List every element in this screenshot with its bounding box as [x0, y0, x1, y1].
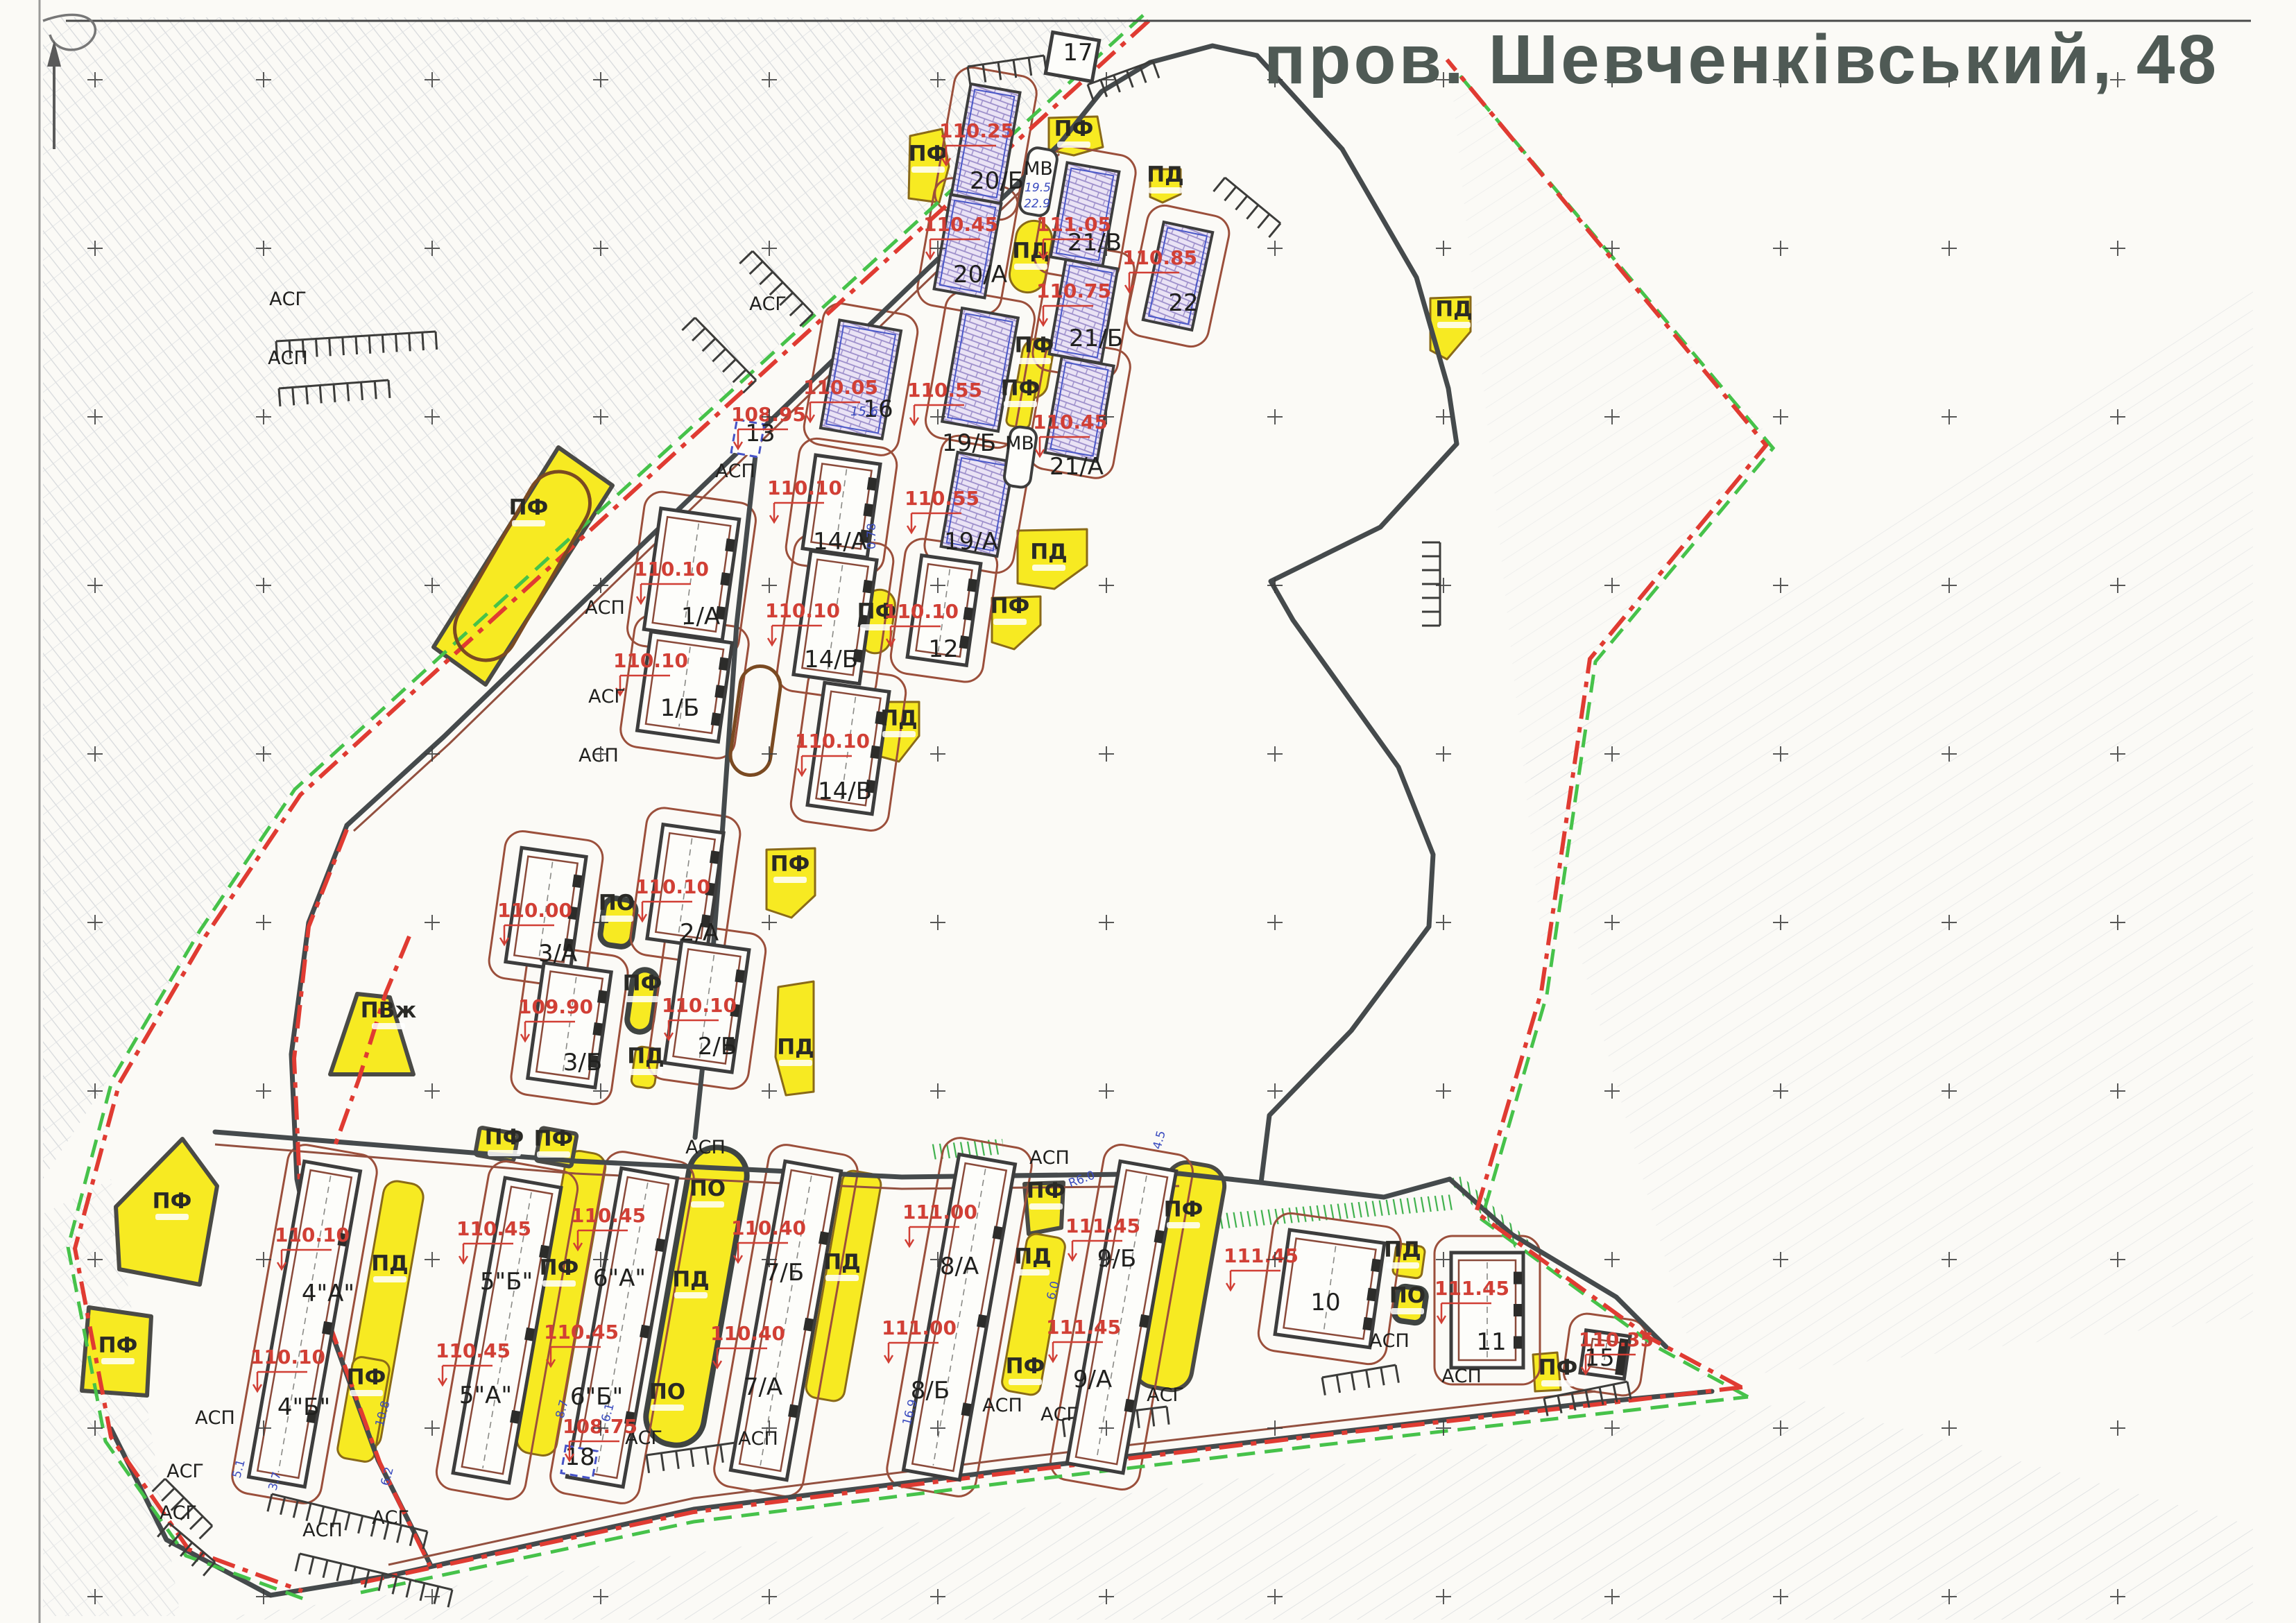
comb-tick — [279, 388, 280, 406]
building-label-12: 12 — [928, 635, 958, 663]
comb-tick — [396, 334, 397, 352]
comb-tick — [320, 386, 321, 404]
comb-tick — [409, 333, 411, 351]
elevation-value: 110.40 — [731, 1217, 806, 1239]
comb-tick — [369, 336, 370, 354]
area-size-text — [1016, 1269, 1050, 1276]
entrance-mark — [1367, 1288, 1376, 1301]
elevation-value: 111.45 — [1434, 1277, 1509, 1300]
building-label-5: 5"А" — [459, 1382, 512, 1409]
area-label-pd-2: ПД — [627, 1044, 665, 1069]
entrance-mark — [719, 657, 728, 670]
parking-label-АСГ: АСГ — [1040, 1404, 1078, 1425]
area-label-pf-s9: ПФ — [1164, 1197, 1203, 1222]
area-size-text — [372, 1023, 405, 1029]
parking-label-АСГ: АСГ — [588, 686, 626, 707]
area-label-pf-2oval: ПФ — [623, 971, 662, 996]
area-size-text — [1004, 401, 1037, 407]
entrance-mark — [1371, 1259, 1380, 1272]
area-size-text — [860, 624, 893, 630]
parking-label-АСГ: АСГ — [160, 1502, 197, 1524]
area-size-text — [1018, 358, 1051, 364]
elevation-value: 110.75 — [1036, 280, 1111, 302]
structure-label-mv2: МВ — [1005, 433, 1034, 454]
area-size-text — [1391, 1308, 1424, 1314]
area-size-text — [373, 1276, 406, 1282]
area-label-po-mid: ПО — [599, 891, 635, 916]
area-size-text — [773, 877, 807, 883]
elevation-value: 110.45 — [544, 1321, 619, 1343]
entrance-mark — [862, 580, 872, 593]
entrance-mark — [1615, 1362, 1625, 1375]
area-label-pd-12: ПД — [880, 706, 918, 731]
elevation-value: 110.10 — [662, 994, 737, 1017]
comb-tick — [361, 382, 363, 400]
area-label-po-strip: ПД — [672, 1267, 710, 1292]
building-label-17: 17 — [1063, 39, 1093, 67]
elevation-value: 111.00 — [902, 1201, 977, 1223]
scanned-site-plan-page: ПФПФПФПФПФПДПФПДПДПФПДПФПДПФПОПФПДПФПДПВ… — [0, 0, 2296, 1623]
parking-label-АСП: АСП — [1029, 1147, 1070, 1169]
structure-dimension: 22.9 — [1024, 197, 1050, 211]
elevation-value: 110.10 — [765, 599, 840, 622]
entrance-mark — [1514, 1304, 1522, 1316]
elevation-value: 110.85 — [1122, 246, 1197, 269]
elevation-value: 111.00 — [882, 1316, 957, 1339]
entrance-mark — [1617, 1350, 1627, 1364]
area-size-text — [1032, 565, 1065, 571]
area-size-text — [1029, 1203, 1063, 1210]
area-label-pf-s8top: ПФ — [1027, 1178, 1066, 1203]
building-label-20b: 20/Б — [970, 167, 1024, 195]
comb-tick — [316, 339, 318, 357]
building-label-20a: 20/А — [953, 261, 1007, 289]
building-label-4: 4"Б" — [277, 1393, 330, 1421]
area-label-pd-10: ПД — [1384, 1237, 1421, 1262]
area-label-pd-right-small: ПД — [1147, 162, 1184, 187]
building-label-7: 7/Б — [765, 1259, 804, 1287]
entrance-mark — [870, 746, 880, 759]
comb-tick — [293, 388, 294, 406]
area-size-text — [1009, 1379, 1042, 1385]
entrance-mark — [867, 477, 877, 490]
comb-tick — [436, 332, 437, 350]
area-label-pdpf-s8: ПД — [1014, 1244, 1052, 1269]
elevation-value: 110.10 — [767, 476, 842, 499]
comb-tick — [375, 381, 376, 400]
area-size-text — [1149, 187, 1182, 194]
elevation-value: 110.45 — [571, 1204, 646, 1227]
building-label-8: 8/Б — [911, 1377, 950, 1405]
area-size-text — [825, 1275, 859, 1281]
comb-tick — [388, 380, 390, 398]
elevation-value: 110.10 — [613, 649, 688, 672]
building-label-3a: 3/А — [538, 940, 577, 968]
parking-label-АСГ: АСГ — [166, 1461, 204, 1482]
elevation-value: 109.90 — [518, 995, 593, 1018]
building-label-7: 7/А — [744, 1373, 782, 1401]
comb-tick — [343, 337, 344, 355]
parking-label-АСП: АСП — [579, 745, 619, 766]
elevation-value: 110.10 — [275, 1223, 350, 1246]
area-label-pd-s4: ПД — [371, 1251, 409, 1276]
comb-tick — [334, 384, 335, 402]
elevation-value: 110.10 — [884, 600, 959, 623]
area-label-pd-right-big: ПД — [1435, 297, 1473, 322]
entrance-mark — [725, 538, 735, 551]
parking-label-АСП: АСП — [738, 1428, 778, 1450]
area-size-text — [674, 1292, 708, 1298]
area-label-pf-19b: ПФ — [991, 594, 1030, 619]
comb-tick — [382, 335, 384, 353]
area-size-text — [512, 520, 545, 526]
area-size-text — [1386, 1262, 1419, 1269]
area-label-pvzh: ПВж — [361, 998, 417, 1023]
parking-label-АСГ: АСГ — [269, 289, 307, 310]
drawing-title: пров. Шевченківський, 48 — [1264, 21, 2219, 98]
area-size-text — [651, 1405, 684, 1411]
area-size-text — [882, 731, 916, 737]
building-label-5: 5"Б" — [480, 1268, 533, 1296]
entrance-mark — [714, 685, 724, 698]
entrance-mark — [967, 578, 977, 592]
area-size-text — [155, 1214, 189, 1220]
building-label-21b: 21/Б — [1069, 325, 1123, 352]
elevation-value: 110.10 — [634, 558, 709, 581]
elevation-value: 110.10 — [795, 730, 870, 753]
area-size-text — [779, 1060, 812, 1066]
comb-tick — [329, 338, 331, 356]
building-label-2b: 2/Б — [698, 1033, 737, 1060]
site-plan-drawing: ПФПФПФПФПФПДПФПДПДПФПДПФПДПФПОПФПДПФПДПВ… — [0, 0, 2296, 1623]
area-size-text — [600, 916, 633, 922]
entrance-mark — [735, 970, 744, 983]
entrance-mark — [711, 712, 721, 725]
area-size-text — [1014, 264, 1047, 270]
area-label-pf-blob1: ПФ — [153, 1189, 192, 1214]
elevation-value: 110.45 — [1033, 411, 1108, 433]
area-size-text — [993, 619, 1027, 625]
building-label-1b: 1/Б — [660, 694, 699, 722]
building-label-19b: 19/Б — [942, 429, 996, 457]
building-label-8: 8/А — [940, 1253, 979, 1280]
building-dimension: 15.6 — [850, 404, 878, 419]
area-label-pf-s4: ПФ — [347, 1365, 386, 1390]
parking-label-АСП: АСП — [195, 1407, 235, 1429]
entrance-mark — [710, 850, 719, 864]
parking-label-АСГ: АСГ — [372, 1507, 409, 1529]
entrance-mark — [1514, 1336, 1522, 1348]
elevation-value: 110.55 — [907, 379, 982, 402]
area-label-po-strip: ПО — [649, 1380, 685, 1405]
building-1b — [637, 631, 733, 741]
building-label-10: 10 — [1310, 1289, 1340, 1316]
comb-tick — [356, 336, 357, 354]
entrance-mark — [720, 572, 730, 585]
elevation-value: 110.10 — [250, 1346, 325, 1368]
area-size-text — [1057, 141, 1090, 148]
area-label-pf-top: ПФ — [1054, 117, 1094, 141]
elevation-value: 110.00 — [497, 899, 572, 922]
area-size-text — [488, 1150, 521, 1156]
area-label-pf-19: ПФ — [1001, 376, 1040, 401]
dimension-text: 0.78 — [865, 523, 879, 549]
area-label-pd-s7: ПД — [823, 1250, 861, 1275]
area-label-po-10: ПО — [1389, 1283, 1425, 1308]
parking-label-АСП: АСП — [982, 1395, 1022, 1416]
entrance-mark — [1362, 1317, 1372, 1330]
elevation-value: 110.10 — [635, 875, 710, 898]
entrance-mark — [963, 607, 973, 620]
entrance-mark — [592, 1022, 602, 1036]
area-label-pd-midright: ПД — [777, 1035, 814, 1060]
elevation-value: 110.25 — [939, 119, 1014, 142]
area-size-text — [101, 1358, 135, 1364]
area-size-text — [1541, 1380, 1575, 1386]
elevation-value: 110.35 — [1579, 1328, 1654, 1351]
parking-label-АСГ: АСГ — [749, 293, 787, 315]
entrance-mark — [959, 635, 969, 649]
building-label-14v: 14/В — [818, 778, 872, 805]
entrance-mark — [572, 875, 582, 888]
area-size-text — [911, 166, 945, 173]
entrance-mark — [1514, 1272, 1522, 1285]
structure-label-mv1: МВ — [1024, 158, 1053, 180]
entrance-mark — [597, 990, 607, 1003]
area-size-text — [1437, 322, 1471, 328]
elevation-value: 110.45 — [436, 1339, 511, 1362]
area-label-pf-stadium: ПФ — [509, 495, 549, 520]
area-label-pf-sq2: ПФ — [534, 1126, 574, 1151]
entrance-mark — [863, 504, 873, 517]
area-size-text — [537, 1151, 570, 1158]
building-label-1a: 1/А — [681, 603, 720, 630]
area-label-pf-sq1: ПФ — [485, 1125, 524, 1150]
parking-label-АСП: АСП — [1441, 1366, 1482, 1387]
parking-label-АСП: АСП — [268, 347, 308, 369]
building-label-9: 9/А — [1073, 1366, 1112, 1393]
area-size-text — [626, 996, 659, 1002]
area-label-po-strip: ПО — [689, 1176, 726, 1201]
area-label-pf-s5: ПФ — [540, 1255, 579, 1280]
area-label-pf-11: ПФ — [1539, 1355, 1578, 1380]
structure-dimension: 19.5 — [1025, 181, 1051, 195]
area-label-pdpf-s8: ПФ — [1006, 1354, 1045, 1379]
parking-label-АСП: АСП — [585, 597, 625, 619]
elevation-value: 111.45 — [1046, 1316, 1121, 1339]
area-label-pf-topleft: ПФ — [909, 141, 948, 166]
area-label-pf-blob2: ПФ — [98, 1333, 138, 1358]
elevation-value: 111.05 — [1036, 213, 1111, 236]
area-size-text — [542, 1280, 576, 1287]
elevation-value: 110.55 — [905, 487, 979, 510]
comb-tick — [348, 384, 349, 402]
area-size-text — [629, 1069, 662, 1075]
area-label-pf-midright: ПФ — [771, 852, 810, 877]
building-label-2a: 2/А — [680, 919, 719, 947]
building-label-19a: 19/А — [944, 528, 998, 556]
building-label-21a: 21/А — [1050, 453, 1104, 481]
building-label-6: 6"А" — [593, 1264, 646, 1292]
elevation-value: 110.45 — [923, 213, 998, 236]
area-label-pd-19big: ПД — [1030, 540, 1068, 565]
building-label-3b: 3/Б — [563, 1049, 602, 1076]
building-label-14a: 14/А — [813, 528, 867, 556]
comb-tick — [307, 386, 308, 404]
parking-label-АСП: АСП — [715, 461, 755, 482]
elevation-value: 110.45 — [456, 1217, 531, 1240]
elevation-value: 111.45 — [1224, 1244, 1299, 1267]
parking-label-АСП: АСП — [302, 1520, 343, 1541]
area-size-text — [1167, 1222, 1200, 1228]
building-label-14b: 14/Б — [804, 646, 858, 673]
area-size-text — [691, 1201, 724, 1208]
elevation-value: 110.05 — [803, 376, 878, 399]
building-label-22: 22 — [1168, 289, 1198, 317]
elevation-value: 110.40 — [710, 1322, 785, 1345]
building-label-11: 11 — [1476, 1328, 1506, 1356]
parking-label-АСП: АСП — [1369, 1330, 1410, 1352]
building-label-4: 4"А" — [302, 1280, 354, 1307]
parking-label-АСП: АСП — [685, 1137, 726, 1158]
parking-label-АСГ: АСГ — [1147, 1384, 1184, 1406]
area-label-pf-oval-s: ПФ — [1015, 333, 1054, 358]
elevation-value: 111.45 — [1065, 1214, 1140, 1237]
area-size-text — [350, 1390, 383, 1396]
comb-tick — [422, 332, 424, 350]
